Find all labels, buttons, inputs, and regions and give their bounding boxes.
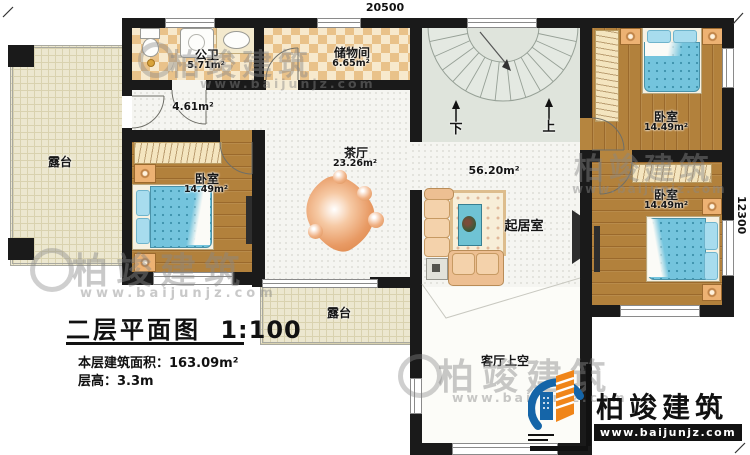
room-label-living: 起居室 <box>504 215 543 234</box>
tv-living-room <box>572 210 580 264</box>
pillow <box>136 190 150 216</box>
room-area-bedroom-mid-right: 14.49m² <box>644 200 688 211</box>
title-underline <box>66 342 244 345</box>
wardrobe-left-bedroom <box>134 142 222 164</box>
watermark-logo-icon <box>30 248 74 292</box>
window <box>317 18 361 28</box>
sofa-seat <box>424 218 450 238</box>
room-area-hallway: 4.61m² <box>172 101 213 113</box>
parapet-pier <box>8 45 34 67</box>
nightstand <box>620 28 641 45</box>
brand-logo-icon <box>528 362 586 440</box>
parapet-pier <box>8 238 34 260</box>
floor-area-line: 本层建筑面积：163.09m² <box>78 352 238 371</box>
nightstand <box>702 28 723 45</box>
window <box>467 18 537 28</box>
passage-floor <box>410 142 422 190</box>
logo-rule-horizontal <box>530 446 588 451</box>
spiral-staircase <box>422 14 584 144</box>
floor-height-label: 层高： <box>78 374 117 389</box>
floor-height-line: 层高：3.3m <box>78 370 154 389</box>
door-opening <box>122 96 132 128</box>
room-area-living: 56.20m² <box>468 164 519 177</box>
window <box>722 48 734 88</box>
table-lamp-icon <box>432 264 440 272</box>
pillow <box>704 222 718 250</box>
sofa-seat <box>476 253 499 275</box>
room-area-bedroom-left: 14.49m² <box>184 184 228 195</box>
down-arrow-icon <box>452 100 460 109</box>
wall <box>252 130 265 287</box>
tv-mid-right-bedroom <box>594 226 600 272</box>
stair-label-down: 下 <box>449 118 462 137</box>
door-opening <box>220 130 252 142</box>
window <box>165 18 215 28</box>
stair-label-up: 上 <box>542 116 555 135</box>
floor-area-label: 本层建筑面积： <box>78 356 169 371</box>
room-area-bedroom-top-right: 14.49m² <box>644 122 688 133</box>
logo-rule-line <box>528 439 548 441</box>
nightstand <box>134 164 156 183</box>
dimension-right: 12300 <box>735 196 748 234</box>
nightstand <box>702 284 722 301</box>
logo-rule-line <box>528 434 554 436</box>
window <box>620 305 700 317</box>
bed-sheet-fold <box>648 219 668 277</box>
floor-cushion <box>308 224 323 239</box>
pillow <box>136 218 150 244</box>
nightstand <box>702 198 722 215</box>
plan-scale: 1:100 <box>220 316 301 344</box>
plan-title-text: 二层平面图 <box>66 316 201 344</box>
floor-area-value: 163.09m² <box>169 356 238 371</box>
floor-cushion <box>368 212 384 228</box>
brand-name: 柏竣建筑 <box>596 386 728 426</box>
sofa-seat <box>452 253 475 275</box>
window <box>262 279 378 288</box>
bed-sheet-fold <box>645 42 697 56</box>
floor-cushion <box>357 186 372 201</box>
watermark-url: www.baijunjz.com <box>80 286 277 301</box>
sofa-seat <box>424 237 450 257</box>
floor-cushion <box>333 170 347 184</box>
watermark-logo-icon <box>398 354 442 398</box>
watermark-url: www.baijunjz.com <box>572 182 727 196</box>
window <box>722 220 734 276</box>
up-arrow-icon <box>545 98 553 107</box>
pillow <box>647 30 671 43</box>
room-area-tea: 23.26m² <box>333 158 377 169</box>
dimension-top: 20500 <box>366 1 404 14</box>
watermark-url: www.baijunjz.com <box>200 76 376 91</box>
table-plant <box>462 216 476 232</box>
wall <box>410 190 422 455</box>
sofa-seat <box>424 199 450 219</box>
watermark-logo-icon <box>138 42 174 78</box>
room-label-terrace-left: 露台 <box>48 153 72 170</box>
brand-url: www.baijunjz.com <box>594 424 742 441</box>
room-label-terrace-bottom: 露台 <box>327 304 351 321</box>
logo-rule-vertical <box>586 364 591 446</box>
pillow <box>704 252 718 280</box>
floor-plan: 20500 12300 露台 公卫 5.71m² 储物间 6.65m² 4.61… <box>0 0 750 455</box>
plan-title: 二层平面图 1:100 <box>66 310 302 345</box>
floor-height-value: 3.3m <box>117 374 154 389</box>
wardrobe-top-right-bedroom <box>595 30 619 122</box>
bed-sheet-fold <box>186 187 210 245</box>
room-area-storage: 6.65m² <box>332 58 370 69</box>
pillow <box>673 30 697 43</box>
